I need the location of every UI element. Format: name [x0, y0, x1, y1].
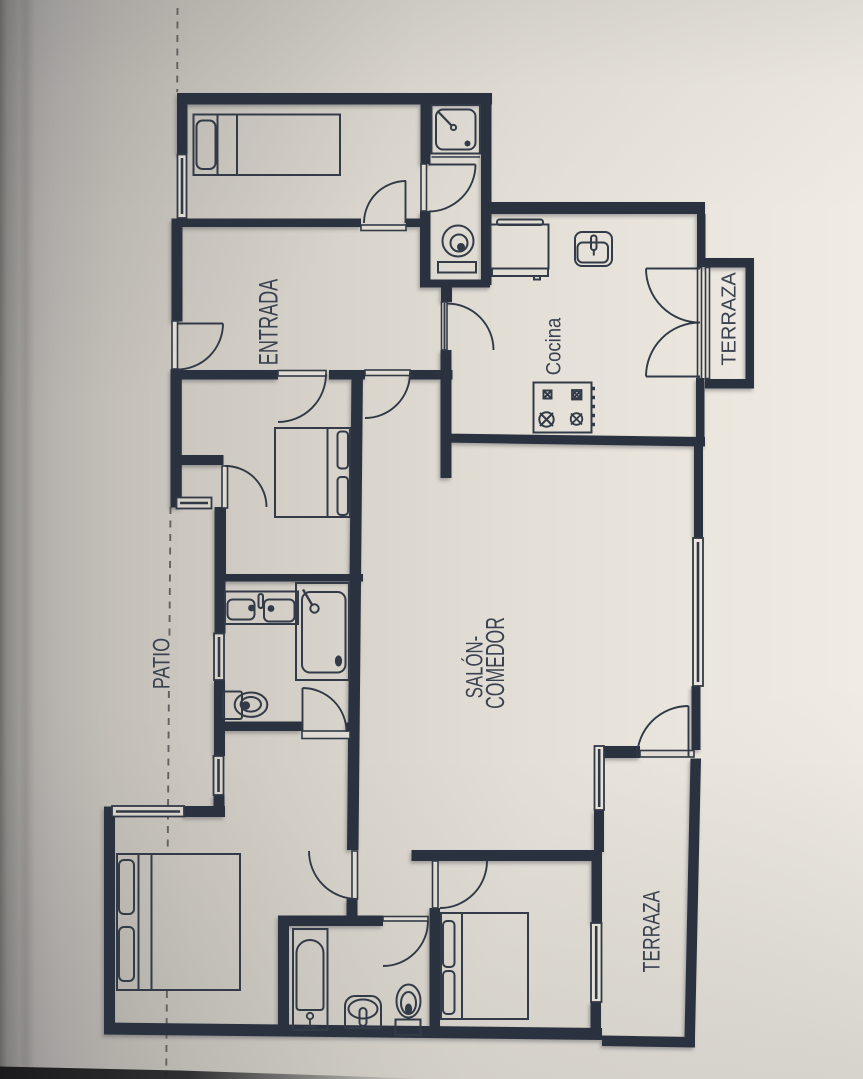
svg-text:ENTRADA: ENTRADA	[253, 278, 284, 365]
svg-text:COMEDOR: COMEDOR	[481, 617, 510, 709]
svg-text:TERRAZA: TERRAZA	[639, 891, 665, 973]
svg-text:PATIO: PATIO	[149, 638, 175, 689]
svg-text:TERRAZA: TERRAZA	[719, 272, 741, 366]
svg-text:Cocina: Cocina	[542, 318, 565, 375]
